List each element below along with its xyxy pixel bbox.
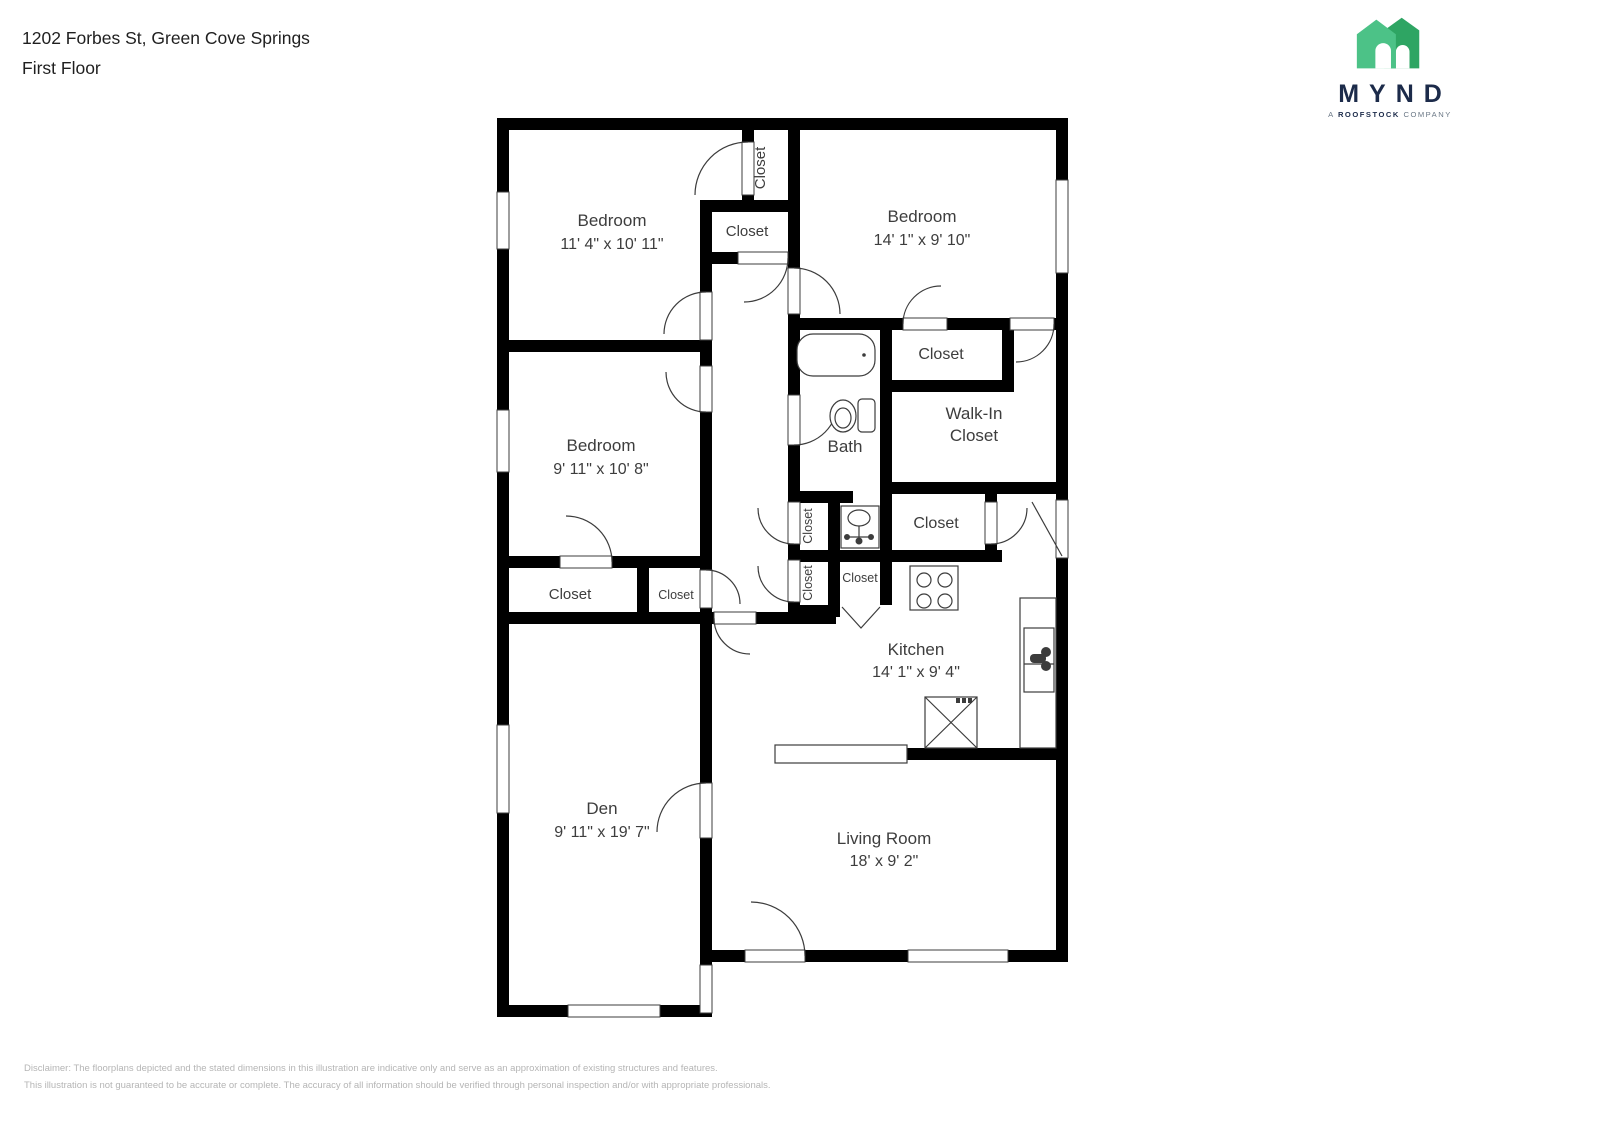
room-label-living-room: Living Room bbox=[837, 829, 932, 848]
wall bbox=[700, 200, 788, 212]
door bbox=[664, 292, 712, 340]
wall bbox=[497, 612, 712, 624]
wall bbox=[497, 340, 712, 352]
closet-label-middle: Closet bbox=[842, 571, 878, 585]
peninsula-counter bbox=[775, 745, 907, 763]
room-label-den: Den bbox=[586, 799, 617, 818]
bifold-door bbox=[842, 607, 880, 628]
disclaimer-line-2: This illustration is not guaranteed to b… bbox=[24, 1077, 771, 1094]
closet-label-bedroom-left: Closet bbox=[549, 586, 592, 603]
kitchen-sink-icon bbox=[1024, 628, 1054, 692]
door bbox=[700, 570, 740, 608]
wall bbox=[788, 491, 853, 503]
wall bbox=[880, 482, 1068, 494]
room-label-walk-in-closet-1: Walk-In bbox=[946, 404, 1003, 423]
bathtub-icon bbox=[797, 334, 875, 376]
wall bbox=[900, 748, 1068, 760]
door bbox=[758, 502, 800, 544]
floor-plan: Bedroom 11' 4" x 10' 11" Bedroom 14' 1" … bbox=[0, 0, 1600, 1132]
closet-label-hall-top: Closet bbox=[726, 223, 769, 240]
exterior-door bbox=[1032, 500, 1068, 558]
closet-label-hall-small-1: Closet bbox=[801, 508, 815, 544]
door bbox=[738, 252, 788, 302]
bathroom-sink-icon bbox=[841, 506, 879, 548]
room-label-kitchen: Kitchen bbox=[888, 640, 945, 659]
front-door bbox=[745, 902, 805, 962]
door bbox=[1010, 318, 1054, 362]
window bbox=[497, 192, 509, 249]
wall bbox=[788, 550, 1002, 562]
door bbox=[788, 268, 840, 314]
room-label-bedroom-top-right: Bedroom bbox=[888, 207, 957, 226]
door bbox=[985, 502, 1027, 544]
room-label-bedroom-top-left: Bedroom bbox=[578, 211, 647, 230]
room-label-walk-in-closet-2: Closet bbox=[950, 426, 998, 445]
window bbox=[497, 725, 509, 813]
wall bbox=[880, 380, 1014, 392]
window bbox=[908, 950, 1008, 962]
room-dims-kitchen: 14' 1" x 9' 4" bbox=[872, 664, 960, 681]
room-label-bath: Bath bbox=[828, 437, 863, 456]
stove-icon bbox=[910, 566, 958, 610]
wall bbox=[828, 494, 840, 605]
room-dims-bedroom-top-left: 11' 4" x 10' 11" bbox=[560, 236, 663, 253]
door bbox=[666, 366, 712, 412]
closet-label-by-bath: Closet bbox=[918, 346, 964, 363]
disclaimer: Disclaimer: The floorplans depicted and … bbox=[24, 1060, 771, 1094]
room-dims-bedroom-top-right: 14' 1" x 9' 10" bbox=[874, 232, 971, 249]
door bbox=[695, 142, 754, 195]
door bbox=[758, 560, 800, 602]
door bbox=[903, 286, 947, 330]
appliance-icon bbox=[925, 697, 977, 748]
window bbox=[497, 410, 509, 472]
room-dims-living-room: 18' x 9' 2" bbox=[850, 853, 919, 870]
wall bbox=[497, 118, 1068, 130]
wall bbox=[800, 605, 840, 617]
window bbox=[568, 1005, 660, 1017]
door bbox=[657, 783, 712, 838]
toilet-icon bbox=[830, 399, 875, 432]
floorplan-page: 1202 Forbes St, Green Cove Springs First… bbox=[0, 0, 1600, 1132]
door bbox=[714, 612, 756, 654]
kitchen-counter bbox=[1020, 598, 1056, 748]
room-dims-den: 9' 11" x 19' 7" bbox=[554, 824, 649, 841]
closet-label-hall-small-2: Closet bbox=[801, 565, 815, 601]
disclaimer-line-1: Disclaimer: The floorplans depicted and … bbox=[24, 1060, 771, 1077]
wall bbox=[880, 330, 892, 605]
closet-label-kitchen: Closet bbox=[913, 515, 959, 532]
door bbox=[560, 516, 612, 568]
window bbox=[700, 965, 712, 1013]
closet-label-bedroom-right: Closet bbox=[658, 588, 694, 602]
room-label-bedroom-middle: Bedroom bbox=[567, 436, 636, 455]
window bbox=[1056, 180, 1068, 273]
closet-label-top-vertical: Closet bbox=[752, 146, 769, 189]
room-dims-bedroom-middle: 9' 11" x 10' 8" bbox=[553, 461, 648, 478]
